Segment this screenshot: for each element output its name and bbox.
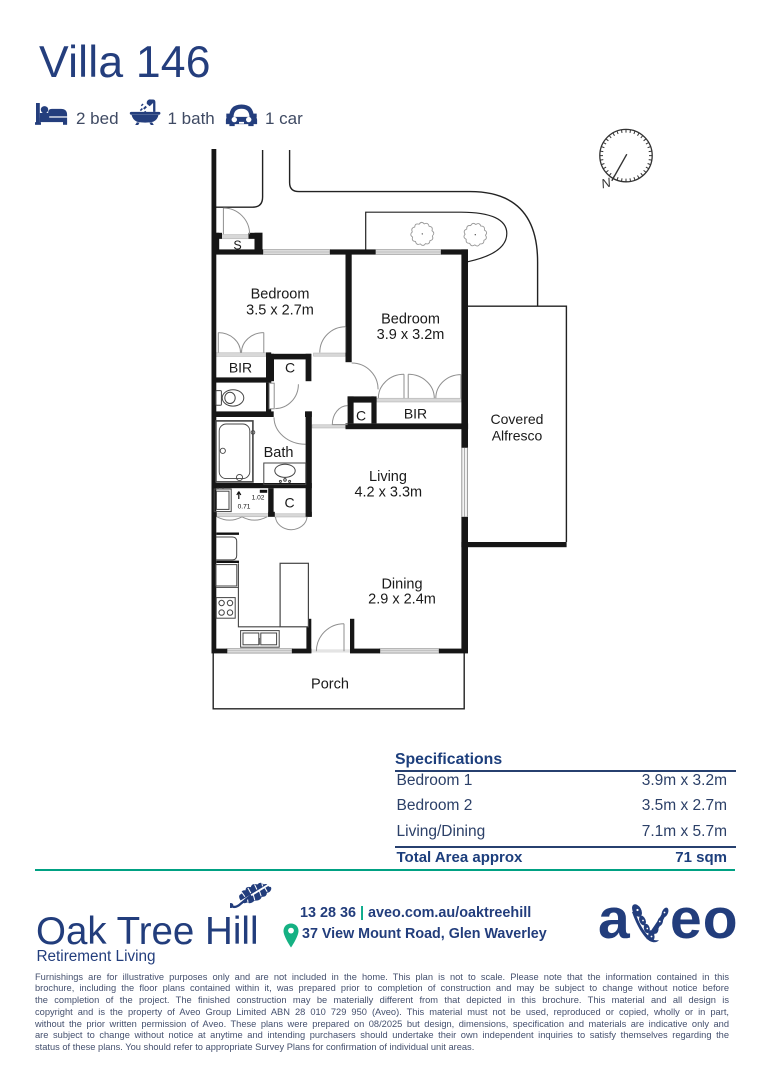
svg-text:BIR: BIR [229, 360, 252, 376]
svg-text:1.02: 1.02 [252, 495, 265, 502]
svg-text:BIR: BIR [404, 406, 427, 422]
svg-text:Bedroom: Bedroom [381, 312, 440, 328]
svg-text:Covered: Covered [491, 411, 544, 427]
svg-text:eo: eo [670, 890, 739, 950]
svg-text:0.71: 0.71 [238, 504, 251, 511]
svg-text:C: C [284, 495, 294, 511]
svg-text:Porch: Porch [311, 677, 349, 693]
svg-text:3.5 x 2.7m: 3.5 x 2.7m [246, 303, 314, 319]
svg-text:3.9 x 3.2m: 3.9 x 3.2m [377, 327, 445, 343]
svg-text:2.9 x 2.4m: 2.9 x 2.4m [368, 592, 436, 608]
svg-text:C: C [356, 408, 366, 424]
svg-text:C: C [285, 360, 295, 376]
svg-text:Bath: Bath [264, 445, 294, 461]
svg-text:Dining: Dining [381, 577, 422, 593]
svg-text:S: S [233, 239, 241, 253]
svg-text:a: a [598, 890, 631, 950]
svg-text:Alfresco: Alfresco [492, 428, 543, 444]
svg-text:Living: Living [369, 469, 407, 485]
svg-text:Bedroom: Bedroom [251, 287, 310, 303]
svg-text:4.2 x 3.3m: 4.2 x 3.3m [354, 485, 422, 501]
